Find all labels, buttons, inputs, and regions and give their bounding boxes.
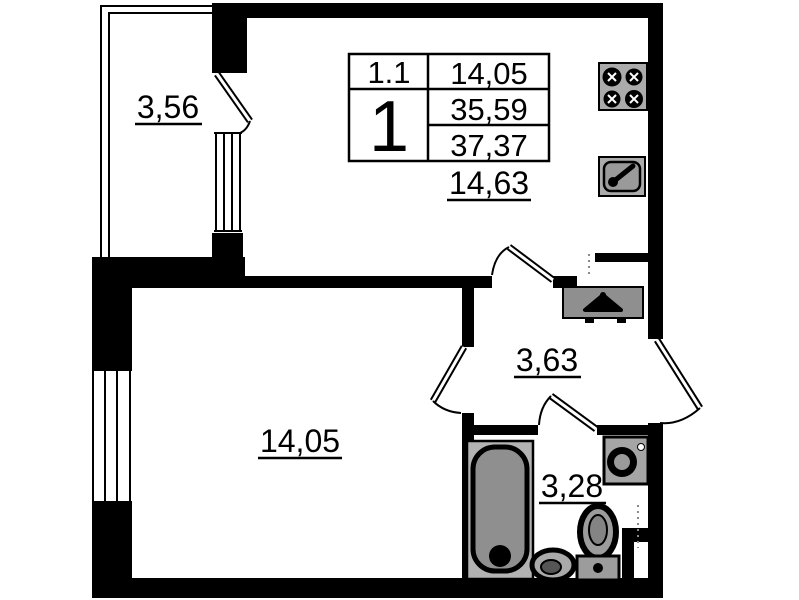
washbasin-icon [532,550,574,580]
entrance-door [657,340,700,423]
wall-top [212,3,663,18]
wall-bath-top-right [597,425,648,435]
unit-type-value: 1.1 [367,55,410,90]
wardrobe [563,287,643,323]
bathtub-icon [467,441,533,579]
bathroom-door [539,396,596,429]
wall-bath-top-left [474,425,538,435]
floor-plan-drawing: 1.1 14,05 1 35,59 37,37 3,56 14,63 14,05… [0,0,799,600]
wall-room-hall-upper [462,288,474,347]
kitchen-area-label: 14,63 [449,165,529,201]
wall-balcony-sill [212,233,243,258]
wall-kitchen-hall-stub-left [474,276,492,288]
wall-left-lower [92,501,132,598]
kitchen-hall-door [492,247,553,280]
living-area-value: 35,59 [450,92,528,127]
room-area-value: 14,05 [450,56,528,91]
total-area-value: 37,37 [450,128,528,163]
wall-room-kitchen-divider [132,276,474,288]
balcony-area-label: 3,56 [137,89,199,125]
living-room-area-label: 14,05 [260,423,340,459]
wall-right-lower [648,423,663,598]
hallway-area-label: 3,63 [516,342,578,378]
window-left-wall [93,371,130,501]
balcony-door [217,74,250,133]
kitchen-sink-icon [599,157,645,196]
window-balcony [214,133,242,232]
stove-icon [599,63,647,110]
unit-info-table: 1.1 14,05 1 35,59 37,37 [349,54,549,167]
wall-closet-top [595,253,648,262]
rooms-count-value: 1 [369,87,409,167]
room-door [433,347,464,413]
wall-balcony-pier [212,3,247,73]
wall-right-upper [648,3,663,339]
washing-machine-icon [604,437,648,484]
toilet-icon [577,506,619,580]
floor-plan: 1.1 14,05 1 35,59 37,37 3,56 14,63 14,05… [0,0,799,600]
balcony-outline [101,6,214,262]
bathroom-area-label: 3,28 [541,468,603,504]
wall-shaft-L [622,528,648,583]
